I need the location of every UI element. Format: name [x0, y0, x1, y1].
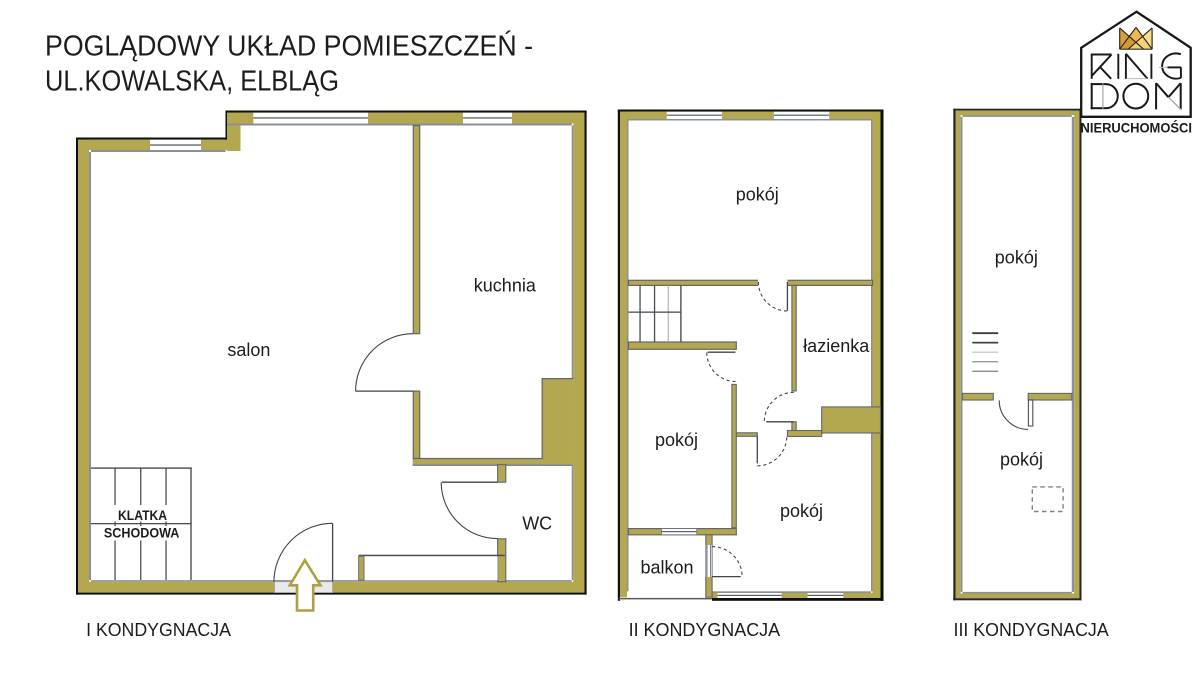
svg-text:II KONDYGNACJA: II KONDYGNACJA	[629, 619, 781, 640]
svg-text:I KONDYGNACJA: I KONDYGNACJA	[86, 619, 231, 640]
svg-text:pokój: pokój	[1000, 450, 1043, 470]
svg-text:NIERUCHOMOŚCI: NIERUCHOMOŚCI	[1081, 119, 1193, 137]
svg-text:pokój: pokój	[995, 248, 1038, 268]
svg-text:pokój: pokój	[655, 430, 698, 450]
svg-text:KLATKA: KLATKA	[118, 507, 167, 523]
svg-text:łazienka: łazienka	[803, 336, 870, 356]
svg-text:UL.KOWALSKA, ELBLĄG: UL.KOWALSKA, ELBLĄG	[45, 66, 339, 98]
svg-text:POGLĄDOWY UKŁAD POMIESZCZEŃ -: POGLĄDOWY UKŁAD POMIESZCZEŃ -	[45, 29, 533, 62]
svg-text:SCHODOWA: SCHODOWA	[104, 525, 179, 541]
svg-text:balkon: balkon	[641, 558, 694, 578]
svg-text:salon: salon	[227, 340, 270, 360]
svg-text:pokój: pokój	[736, 185, 779, 205]
svg-text:kuchnia: kuchnia	[474, 275, 537, 295]
svg-text:WC: WC	[522, 514, 552, 534]
svg-text:pokój: pokój	[780, 501, 823, 521]
svg-text:III KONDYGNACJA: III KONDYGNACJA	[954, 619, 1110, 640]
